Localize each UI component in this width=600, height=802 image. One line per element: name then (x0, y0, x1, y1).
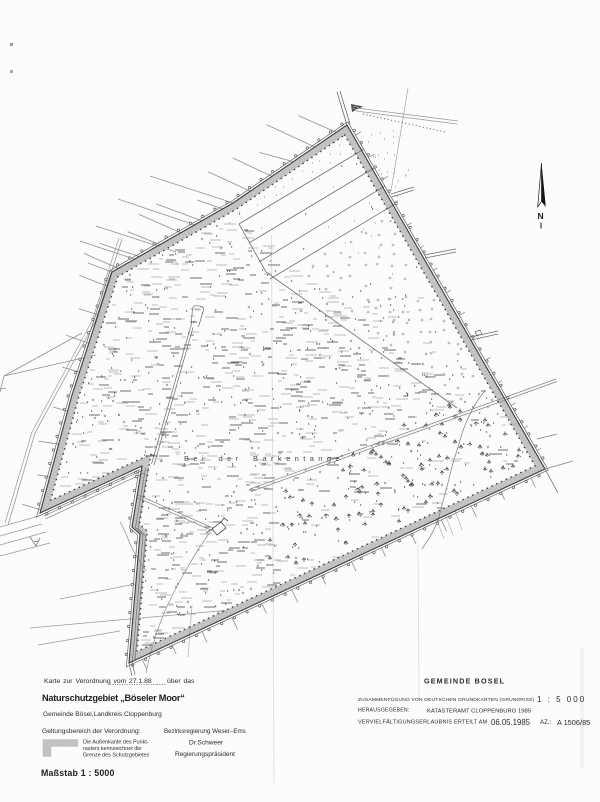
svg-text:Maßstab 1 : 5000: Maßstab 1 : 5000 (41, 768, 115, 778)
svg-text:ZUSAMMENFÜGUNG VON DEUTSCHEN G: ZUSAMMENFÜGUNG VON DEUTSCHEN GRUNDKARTEN… (358, 696, 534, 703)
svg-text:AZ.:: AZ.: (540, 719, 551, 726)
svg-text:A 1506/85: A 1506/85 (557, 718, 590, 727)
svg-text:Bei der Barkentange: Bei der Barkentange (184, 454, 344, 463)
svg-text:Geltungsbereich der Verordnung: Geltungsbereich der Verordnung: (42, 728, 141, 735)
svg-text:Karte zur Verordnung vom: Karte zur Verordnung vom (44, 678, 127, 685)
svg-text:1 : 5 000: 1 : 5 000 (537, 695, 586, 704)
svg-text:27.1.88: 27.1.88 (129, 678, 152, 685)
svg-text:Naturschutzgebiet „Böseler Moo: Naturschutzgebiet „Böseler Moor“ (42, 693, 185, 703)
svg-text:über das: über das (167, 678, 195, 685)
svg-text:Dr.Schweer: Dr.Schweer (189, 740, 224, 747)
svg-text:Regierungspräsident: Regierungspräsident (175, 751, 235, 758)
svg-text:Grenze des Schutzgebietes: Grenze des Schutzgebietes (83, 753, 150, 759)
svg-text:06.05.1985: 06.05.1985 (491, 718, 531, 727)
svg-text:GEMEINDE BOSEL: GEMEINDE BOSEL (424, 677, 505, 686)
svg-text:Gemeinde Bösel,Landkreis Clopp: Gemeinde Bösel,Landkreis Cloppenburg (43, 711, 162, 718)
svg-text:HERAUSGEGEBEN:: HERAUSGEGEBEN: (358, 708, 410, 714)
svg-text:KATASTERAMT CLOPPENBURG 1985: KATASTERAMT CLOPPENBURG 1985 (427, 709, 532, 715)
svg-text:rasters kennzeichnet die: rasters kennzeichnet die (83, 746, 141, 752)
svg-text:Bezirksregierung Weser–Ems: Bezirksregierung Weser–Ems (164, 728, 246, 735)
svg-text:N: N (538, 211, 544, 221)
svg-text:Die Außenkante des Punkt-: Die Außenkante des Punkt- (83, 740, 149, 746)
svg-text:VERVIELFÄLTIGUNGSERLAUBNIS ERT: VERVIELFÄLTIGUNGSERLAUBNIS ERTEILT AM (358, 719, 488, 726)
